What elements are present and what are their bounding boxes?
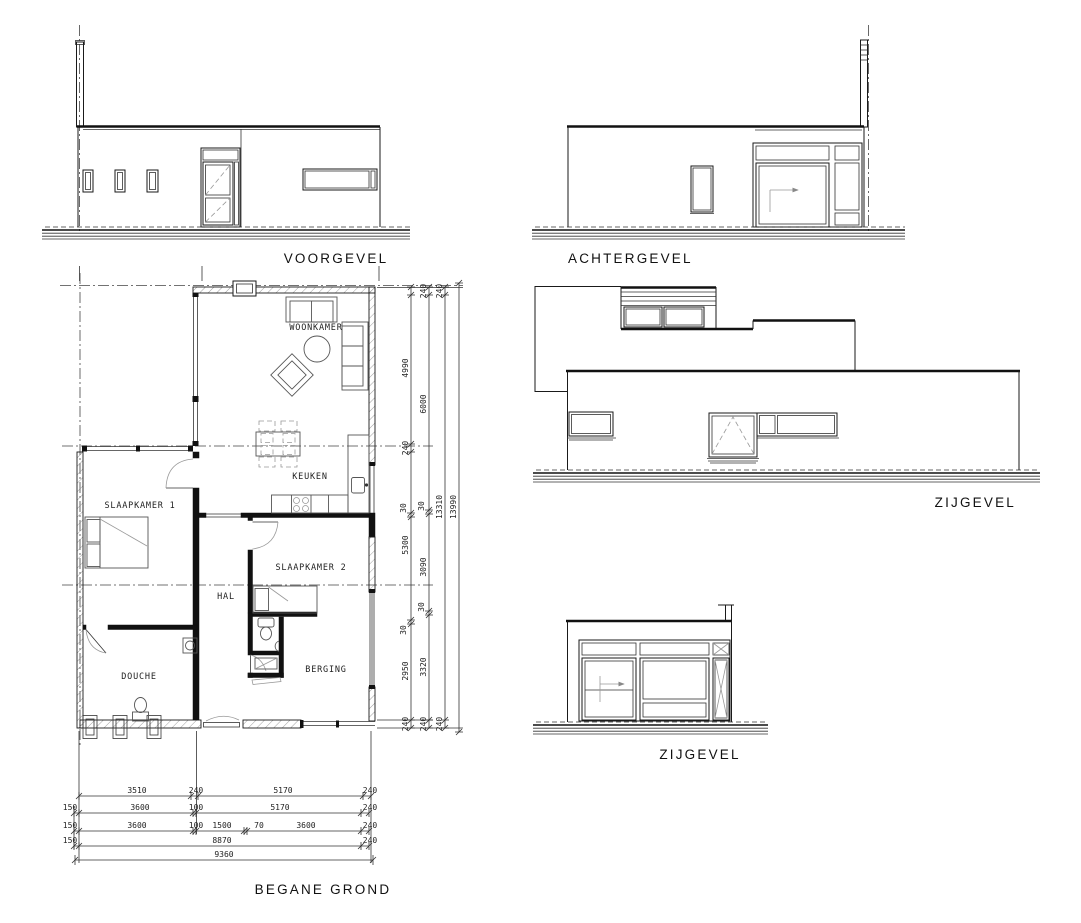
dim-label: 240	[363, 786, 378, 795]
wc-closet	[248, 613, 284, 685]
architectural-sheet: VOORGEVEL ACHTERGEVEL	[0, 0, 1081, 923]
label-slaapkamer1: SLAAPKAMER 1	[104, 501, 175, 511]
small-window	[115, 170, 125, 192]
elevation-voorgevel: VOORGEVEL	[42, 25, 410, 281]
clerestory-window	[664, 307, 704, 327]
bed-slaapkamer2	[253, 586, 317, 613]
wall-top	[193, 287, 375, 293]
sink	[352, 478, 365, 494]
door-slaapkamer1	[166, 459, 193, 488]
dim-label: 240	[435, 284, 444, 299]
dim-label: 100	[189, 821, 204, 830]
fixed-glass	[640, 658, 709, 720]
ground-line	[533, 470, 1040, 482]
wall-right-mid	[369, 513, 375, 537]
label-slaapkamer2: SLAAPKAMER 2	[275, 563, 346, 573]
window-small	[567, 412, 616, 440]
elevation-zijgevel-2: ZIJGEVEL	[533, 605, 768, 762]
dim-label: 5170	[273, 786, 292, 795]
dim-label: 5170	[270, 803, 289, 812]
title-zijgevel-1: ZIJGEVEL	[935, 495, 1016, 510]
chimney	[76, 41, 85, 128]
chimney	[861, 40, 868, 127]
dim-label: 3090	[419, 557, 428, 576]
window-wall-slaapkamer1	[82, 446, 193, 452]
dim-label: 30	[399, 625, 408, 635]
armchair	[271, 354, 313, 396]
front-door	[204, 716, 240, 727]
door-slaapkamer2	[253, 522, 279, 549]
entrance-door	[201, 148, 240, 227]
basin-wc	[275, 641, 279, 652]
wall-right	[369, 537, 375, 592]
toilet-douche	[133, 698, 149, 722]
title-zijgevel-2: ZIJGEVEL	[659, 747, 740, 762]
dim-label: 240	[363, 821, 378, 830]
clerestory-window	[624, 307, 662, 327]
strip-window-plan	[300, 720, 375, 728]
dim-label: 240	[419, 284, 428, 299]
dim-label: 3510	[127, 786, 146, 795]
title-achtergevel: ACHTERGEVEL	[568, 251, 693, 266]
dim-label: 30	[417, 602, 426, 612]
wall-right-lower	[369, 687, 375, 721]
label-woonkamer: WOONKAMER	[289, 323, 342, 333]
dim-label: 240	[363, 836, 378, 845]
dim-label: 150	[63, 803, 78, 812]
bed-slaapkamer1	[85, 517, 148, 568]
label-douche: DOUCHE	[121, 672, 157, 682]
dim-label: 30	[399, 503, 408, 513]
clerestory	[621, 287, 753, 329]
dimension-chains-right: 4990 240 30 5300 30 2950 240 240 6000 30…	[377, 280, 463, 735]
dim-label: 30	[417, 501, 426, 511]
round-table	[304, 336, 330, 362]
dim-label: 8870	[212, 836, 231, 845]
label-berging: BERGING	[305, 665, 346, 675]
dim-label: 240	[363, 803, 378, 812]
dim-label: 3600	[296, 821, 315, 830]
elevation-zijgevel-1: ZIJGEVEL	[533, 287, 1040, 511]
wall-hal-left	[193, 488, 199, 720]
toilet-wc	[258, 618, 274, 640]
elevation-achtergevel: ACHTERGEVEL	[532, 25, 905, 266]
strip-window	[303, 169, 377, 190]
ground-line	[533, 722, 768, 734]
dim-label: 240	[401, 717, 410, 732]
dim-label: 3600	[130, 803, 149, 812]
wall-douche	[83, 625, 198, 653]
cooktop	[294, 498, 309, 512]
small-window	[147, 170, 158, 192]
dim-label: 240	[401, 441, 410, 456]
sliding-door	[582, 658, 636, 720]
wall-right-upper	[369, 287, 375, 465]
window	[690, 166, 714, 214]
dim-label: 6000	[419, 394, 428, 413]
title-voorgevel: VOORGEVEL	[284, 251, 389, 266]
label-keuken: KEUKEN	[292, 472, 328, 482]
dimension-chains-bottom: 3510 240 5170 240 150 3600 100 5170 240 …	[63, 731, 378, 865]
wall-left	[77, 452, 83, 728]
dim-label: 150	[63, 821, 78, 830]
dim-label: 9360	[214, 850, 233, 859]
sofa-three-seat	[342, 322, 368, 390]
window-kitchen	[369, 462, 375, 513]
wall-keuken	[241, 513, 369, 518]
rear-volume-outline	[535, 287, 621, 392]
ground-line	[42, 227, 410, 239]
wall-bottom-mid	[243, 720, 301, 728]
small-window	[83, 170, 93, 192]
dim-label: 3320	[419, 657, 428, 676]
side-door	[713, 658, 729, 720]
dim-label: 2950	[401, 661, 410, 680]
dim-label: 13310	[435, 495, 444, 519]
fireplace	[233, 281, 256, 296]
glass-facade	[579, 640, 730, 721]
dim-label: 240	[435, 717, 444, 732]
sliding-door-assembly	[753, 143, 862, 227]
window-tilt	[707, 413, 759, 463]
window-berging	[369, 589, 375, 689]
dim-label: 150	[63, 836, 78, 845]
dim-label: 240	[419, 717, 428, 732]
glass-door-hal	[206, 514, 241, 517]
dim-label: 5300	[401, 535, 410, 554]
window-wall-woonkamer	[193, 293, 199, 446]
strip-window	[757, 413, 839, 438]
dim-label: 100	[189, 803, 204, 812]
dim-label: 13990	[449, 495, 458, 519]
wall-hal-slk2	[248, 550, 253, 613]
dim-label: 70	[254, 821, 264, 830]
title-begane-grond: BEGANE GROND	[255, 882, 392, 897]
chimney	[718, 605, 734, 621]
drawing-canvas: VOORGEVEL ACHTERGEVEL	[0, 0, 1081, 923]
dining-table	[256, 421, 300, 467]
dim-label: 240	[189, 786, 204, 795]
label-hal: HAL	[217, 592, 235, 602]
dim-label: 3600	[127, 821, 146, 830]
sofa-two-seat	[286, 297, 337, 322]
dim-label: 1500	[212, 821, 231, 830]
ground-line	[532, 227, 905, 239]
dim-label: 4990	[401, 358, 410, 377]
